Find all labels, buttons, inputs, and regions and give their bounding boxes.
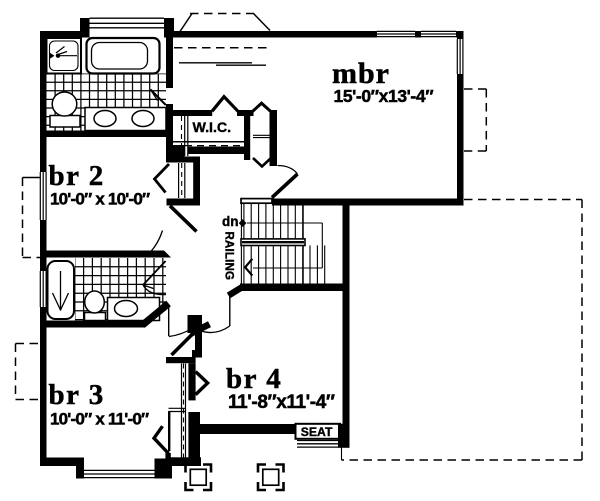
svg-text:RAILING: RAILING [222,232,234,281]
svg-text:W.I.C.: W.I.C. [193,120,232,136]
svg-text:10'-0″ x 11'-0″: 10'-0″ x 11'-0″ [50,409,149,428]
svg-text:SEAT: SEAT [301,425,333,439]
svg-text:mbr: mbr [332,57,390,90]
svg-text:dn: dn [222,214,239,229]
svg-text:15'-0″x13'-4″: 15'-0″x13'-4″ [334,86,435,106]
svg-text:br 3: br 3 [49,379,105,411]
svg-text:11'-8″x11'-4″: 11'-8″x11'-4″ [228,392,335,413]
svg-text:br 4: br 4 [226,363,282,395]
svg-text:10'-0″ x 10'-0″: 10'-0″ x 10'-0″ [50,190,150,209]
svg-text:br 2: br 2 [49,160,105,192]
